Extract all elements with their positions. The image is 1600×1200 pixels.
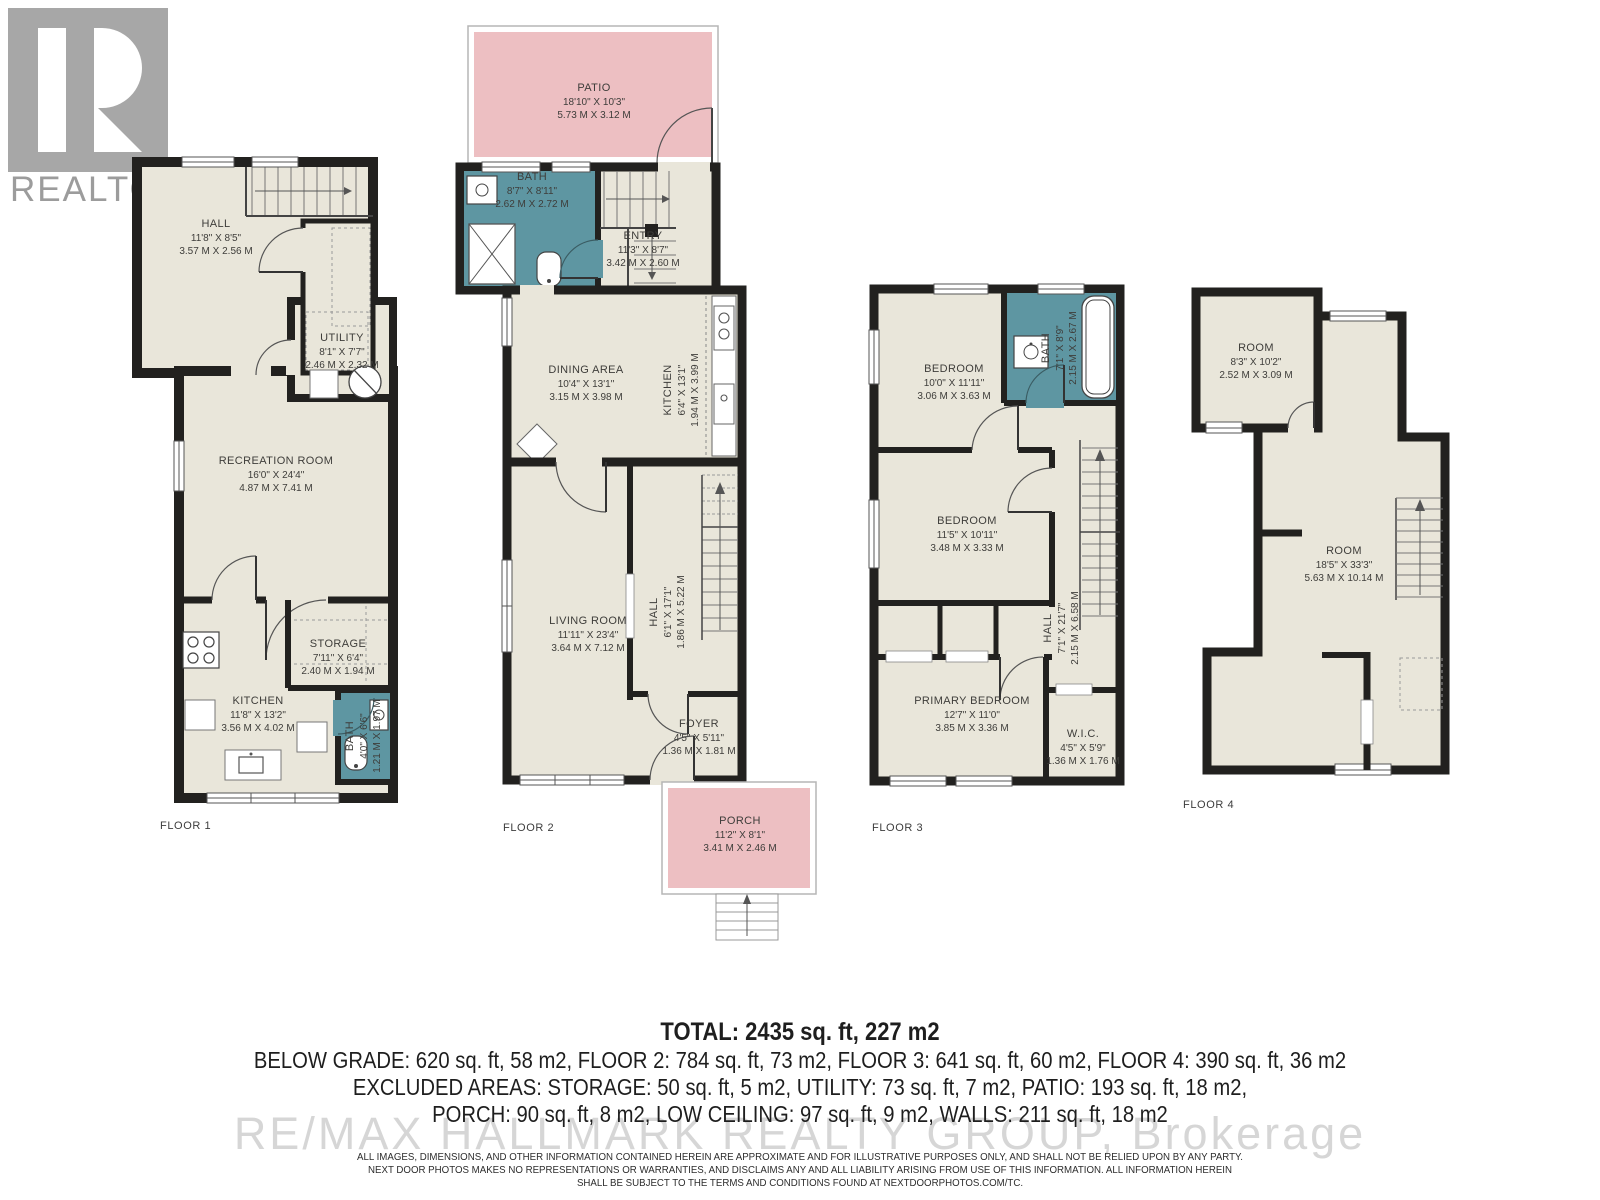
room-label-f1-bath: BATH 4'0" X 6'6" 1.21 M X 1.97 M [344, 699, 384, 772]
room-label-f3-hall: HALL 7'1" X 21'7" 2.15 M X 6.58 M [1042, 591, 1082, 664]
summary-line2: EXCLUDED AREAS: STORAGE: 50 sq. ft, 5 m2… [96, 1074, 1504, 1101]
room-label-f3-bath: BATH 7'1" X 8'9" 2.15 M X 2.67 M [1040, 311, 1080, 384]
summary-line1: BELOW GRADE: 620 sq. ft, 58 m2, FLOOR 2:… [96, 1047, 1504, 1074]
room-label-f1-kitchen: KITCHEN 11'8" X 13'2" 3.56 M X 4.02 M [221, 695, 294, 735]
room-label-f2-patio: PATIO 18'10" X 10'3" 5.73 M X 3.12 M [557, 82, 630, 122]
kitchen-sink-icon [225, 750, 281, 780]
stove-icon [183, 632, 219, 668]
disclaimer-line2: NEXT DOOR PHOTOS MAKES NO REPRESENTATION… [24, 1165, 1576, 1176]
disclaimer-line1: ALL IMAGES, DIMENSIONS, AND OTHER INFORM… [24, 1152, 1576, 1163]
room-label-f3-bedroom2: BEDROOM 11'5" X 10'11" 3.48 M X 3.33 M [930, 515, 1003, 555]
floor1-label: FLOOR 1 [160, 820, 211, 832]
room-label-f1-utility: UTILITY 8'1" X 7'7" 2.46 M X 2.32 M [305, 332, 378, 372]
floorplan-page: { "branding": { "logo_letter": "R", "log… [0, 0, 1600, 1200]
room-label-f3-bedroom1: BEDROOM 10'0" X 11'11" 3.06 M X 3.63 M [917, 363, 990, 403]
room-label-f2-living: LIVING ROOM 11'11" X 23'4" 3.64 M X 7.12… [549, 615, 627, 655]
floor3-label: FLOOR 3 [872, 822, 923, 834]
sink-icon [467, 176, 497, 204]
room-label-f1-recreation: RECREATION ROOM 16'0" X 24'4" 4.87 M X 7… [219, 455, 334, 495]
porch-area [662, 782, 816, 940]
room-label-f1-storage: STORAGE 7'11" X 6'4" 2.40 M X 1.94 M [301, 638, 374, 678]
room-label-f2-foyer: FOYER 4'5" X 5'11" 1.36 M X 1.81 M [662, 718, 735, 758]
summary-total: TOTAL: 2435 sq. ft, 227 m2 [96, 1018, 1504, 1047]
room-label-f3-primary: PRIMARY BEDROOM 12'7" X 11'0" 3.85 M X 3… [914, 695, 1030, 735]
realtor-logo-icon [8, 8, 168, 172]
floor2-label: FLOOR 2 [503, 822, 554, 834]
room-label-f2-hall: HALL 6'1" X 17'1" 1.86 M X 5.22 M [648, 575, 688, 648]
room-label-f1-hall: HALL 11'8" X 8'5" 3.57 M X 2.56 M [179, 218, 252, 258]
room-label-f2-kitchen: KITCHEN 6'4" X 13'1" 1.94 M X 3.99 M [662, 353, 702, 426]
disclaimer-line3: SHALL BE SUBJECT TO THE TERMS AND CONDIT… [24, 1178, 1576, 1189]
room-label-f2-dining: DINING AREA 10'4" X 13'1" 3.15 M X 3.98 … [548, 364, 623, 404]
floor2-plan [445, 18, 830, 948]
floor4-label: FLOOR 4 [1183, 799, 1234, 811]
bathtub-icon [1082, 296, 1114, 398]
room-label-f4-room2: ROOM 18'5" X 33'3" 5.63 M X 10.14 M [1305, 545, 1384, 585]
room-label-f3-wic: W.I.C. 4'5" X 5'9" 1.36 M X 1.76 M [1046, 728, 1119, 768]
room-label-f4-room1: ROOM 8'3" X 10'2" 2.52 M X 3.09 M [1219, 342, 1292, 382]
room-label-f2-porch: PORCH 11'2" X 8'1" 3.41 M X 2.46 M [703, 815, 776, 855]
room-label-f2-entry: ENTRY 11'3" X 8'7" 3.42 M X 2.60 M [606, 230, 679, 270]
room-label-f2-bath: BATH 8'7" X 8'11" 2.62 M X 2.72 M [495, 171, 568, 211]
kitchen-counter [712, 296, 736, 456]
summary-line3: PORCH: 90 sq. ft, 8 m2, LOW CEILING: 97 … [96, 1101, 1504, 1128]
